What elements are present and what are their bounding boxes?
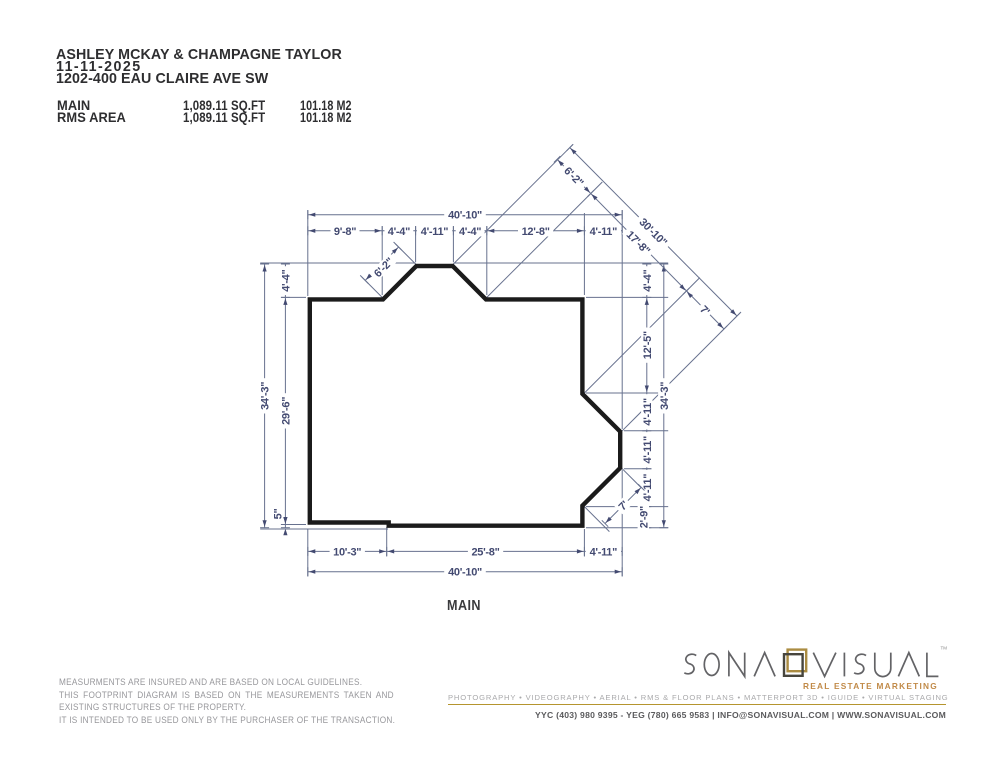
svg-text:4'-4": 4'-4"	[388, 226, 410, 238]
svg-text:2'-9": 2'-9"	[638, 506, 650, 528]
svg-text:7': 7'	[617, 499, 632, 514]
svg-text:4'-11": 4'-11"	[642, 398, 654, 426]
svg-text:4'-11": 4'-11"	[590, 546, 618, 558]
svg-text:4'-11": 4'-11"	[421, 226, 449, 238]
svg-text:10'-3": 10'-3"	[333, 546, 361, 558]
svg-text:5": 5"	[272, 509, 284, 520]
svg-text:9'-8": 9'-8"	[334, 226, 356, 238]
svg-text:40'-10": 40'-10"	[448, 567, 482, 579]
svg-text:29'-6": 29'-6"	[280, 397, 292, 425]
svg-text:12'-5": 12'-5"	[642, 331, 654, 359]
svg-text:4'-11": 4'-11"	[642, 474, 654, 502]
svg-text:12'-8": 12'-8"	[522, 226, 550, 238]
svg-text:34'-3": 34'-3"	[260, 382, 272, 410]
svg-text:34'-3": 34'-3"	[659, 382, 671, 410]
svg-text:TM: TM	[941, 646, 948, 651]
svg-text:40'-10": 40'-10"	[448, 210, 482, 222]
svg-text:4'-11": 4'-11"	[642, 436, 654, 464]
svg-text:7': 7'	[697, 304, 712, 319]
svg-text:4'-11": 4'-11"	[590, 226, 618, 238]
svg-text:25'-8": 25'-8"	[471, 546, 499, 558]
svg-text:4'-4": 4'-4"	[280, 270, 292, 292]
svg-text:4'-4": 4'-4"	[459, 226, 481, 238]
svg-text:4'-4": 4'-4"	[642, 270, 654, 292]
